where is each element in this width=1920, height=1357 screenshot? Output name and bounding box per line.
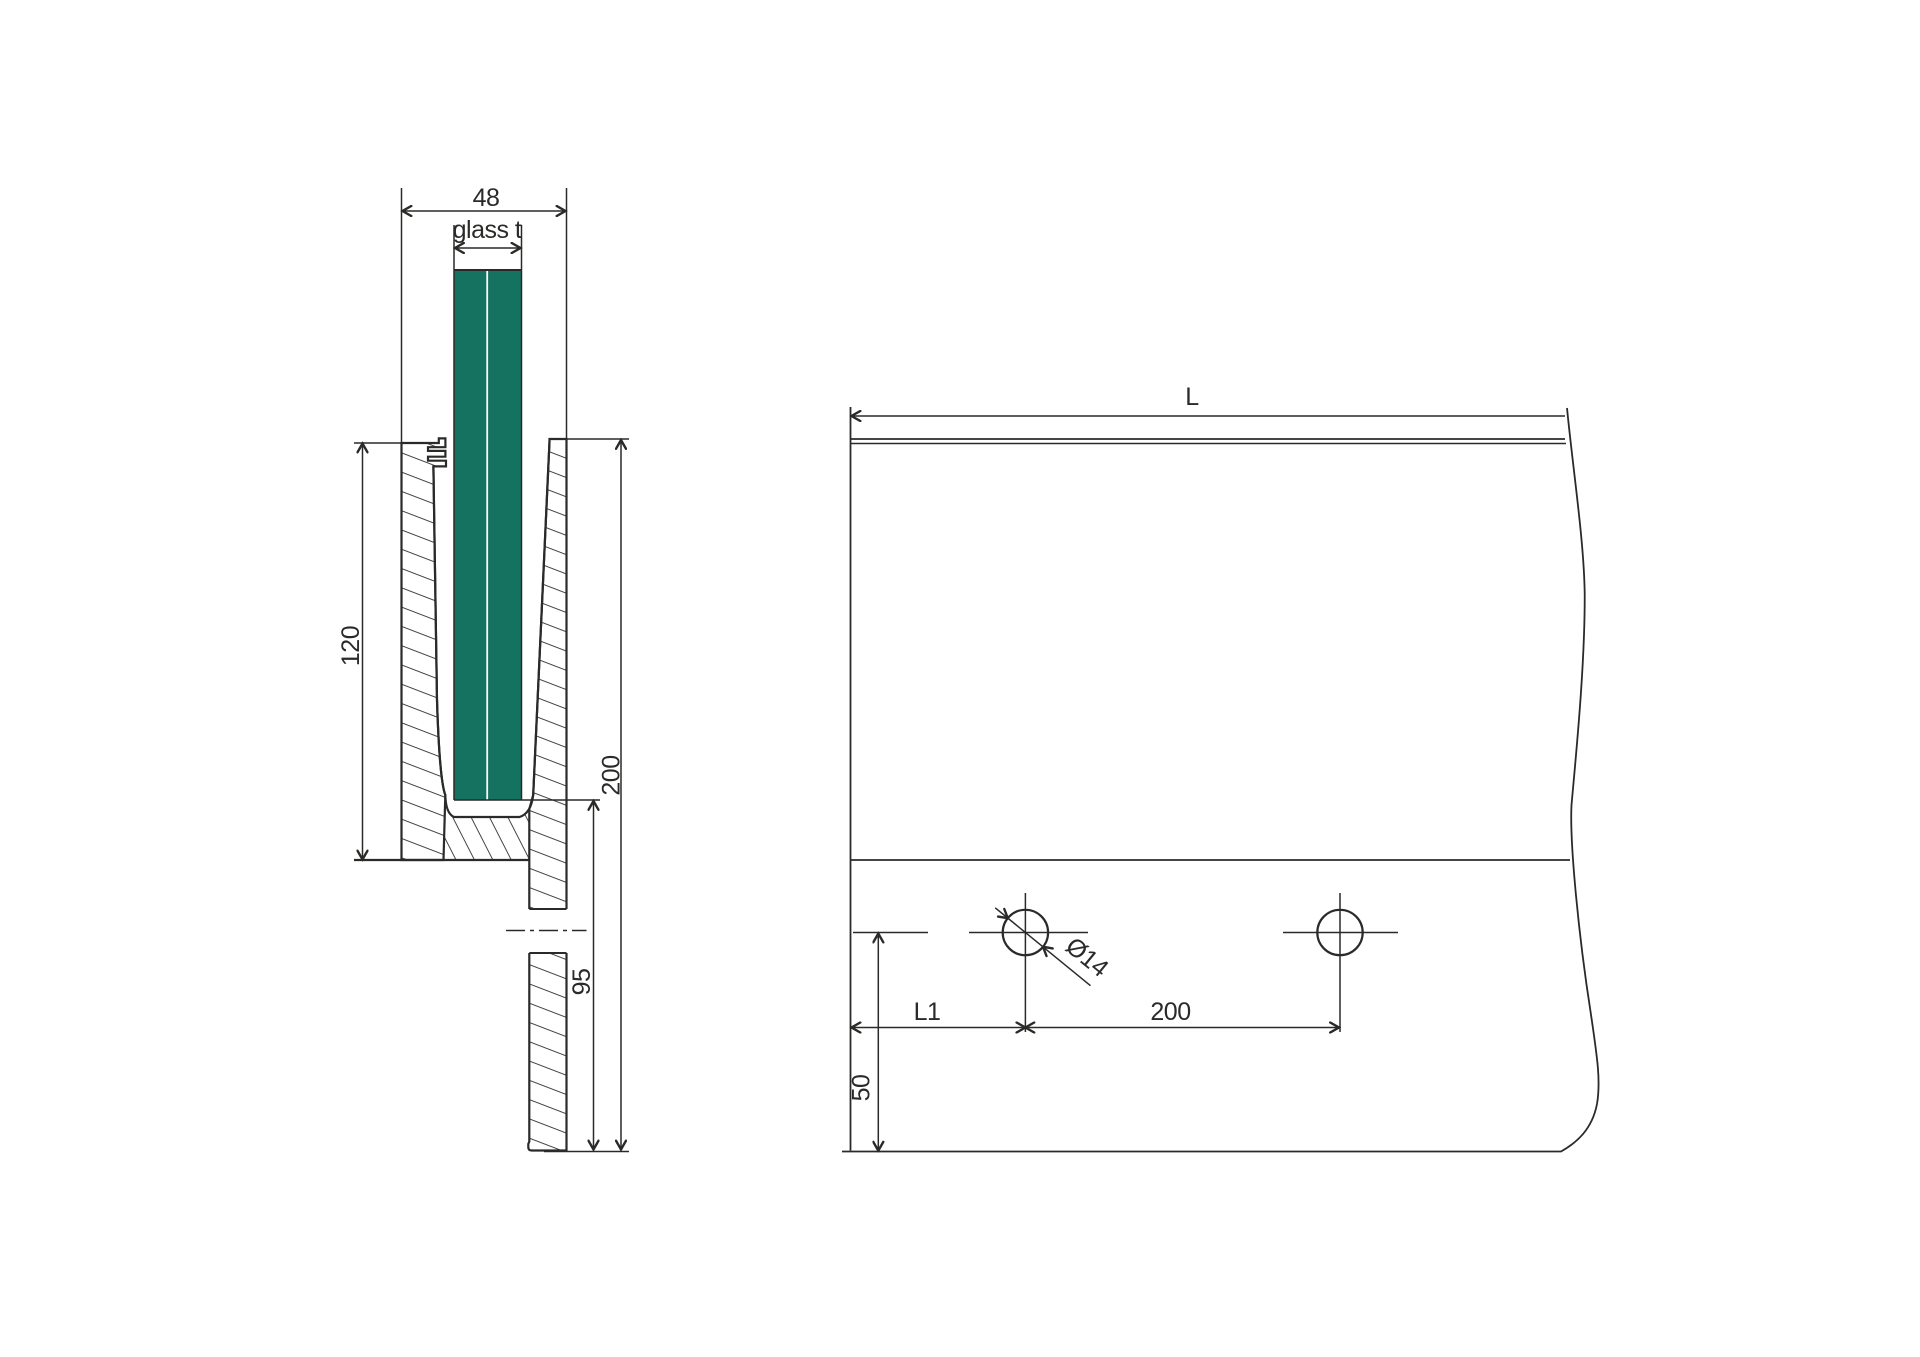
svg-text:L: L bbox=[1185, 383, 1199, 411]
svg-text:50: 50 bbox=[848, 1075, 876, 1102]
svg-text:200: 200 bbox=[1150, 998, 1190, 1026]
svg-text:L1: L1 bbox=[914, 998, 941, 1026]
svg-text:95: 95 bbox=[568, 969, 596, 996]
svg-text:200: 200 bbox=[598, 755, 626, 795]
svg-text:glass t: glass t bbox=[453, 216, 522, 244]
svg-text:120: 120 bbox=[337, 626, 365, 666]
svg-text:Ø14: Ø14 bbox=[1060, 932, 1114, 983]
svg-text:48: 48 bbox=[473, 184, 500, 212]
